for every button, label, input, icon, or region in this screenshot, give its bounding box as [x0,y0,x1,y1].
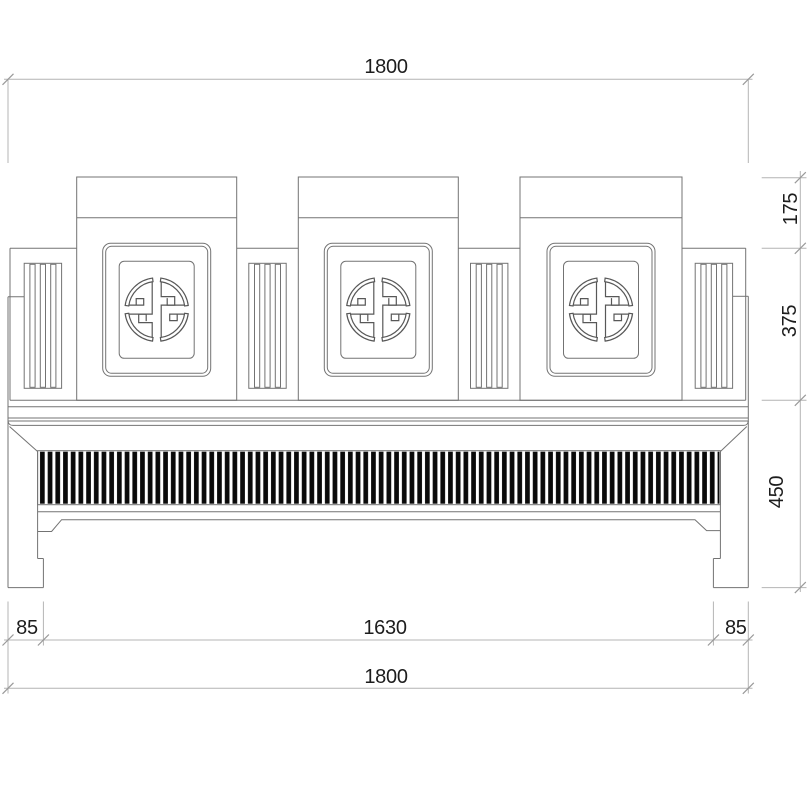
back-panel-center [298,177,458,400]
dimension-lines [3,74,807,694]
dim-top-overall [3,74,754,163]
dim-text-right-foot-width: 85 [686,618,786,638]
backrest-slat-panel-1 [24,263,61,388]
dim-text-top-overall-width: 1800 [336,57,436,77]
dim-text-left-foot-width: 85 [0,618,77,638]
bench-elevation-drawing [0,0,810,810]
back-panel-left [77,177,237,400]
technical-drawing-canvas: 1800 175 375 450 85 1630 85 1800 [0,0,810,810]
back-panel-right [520,177,682,400]
dim-text-backrest-top-height: 175 [781,159,801,259]
waist-chamfer-left [10,427,38,452]
backrest-slat-panel-3 [471,263,508,388]
backrest-slat-panel-4 [695,263,732,388]
longevity-medallion-frame-center [324,243,432,376]
dim-text-backrest-mid-height: 375 [780,271,800,371]
dim-text-base-height: 450 [767,442,787,542]
bench-outline [8,177,748,588]
apron-slats [38,451,721,532]
seat-rail [8,407,748,426]
longevity-medallion-frame-right [547,243,655,376]
waist-chamfer-right [720,427,746,452]
dim-text-bottom-overall-width: 1800 [336,667,436,687]
backrest-slat-panel-2 [249,263,286,388]
longevity-medallion-frame-left [103,243,211,376]
dim-text-inner-span: 1630 [335,618,435,638]
